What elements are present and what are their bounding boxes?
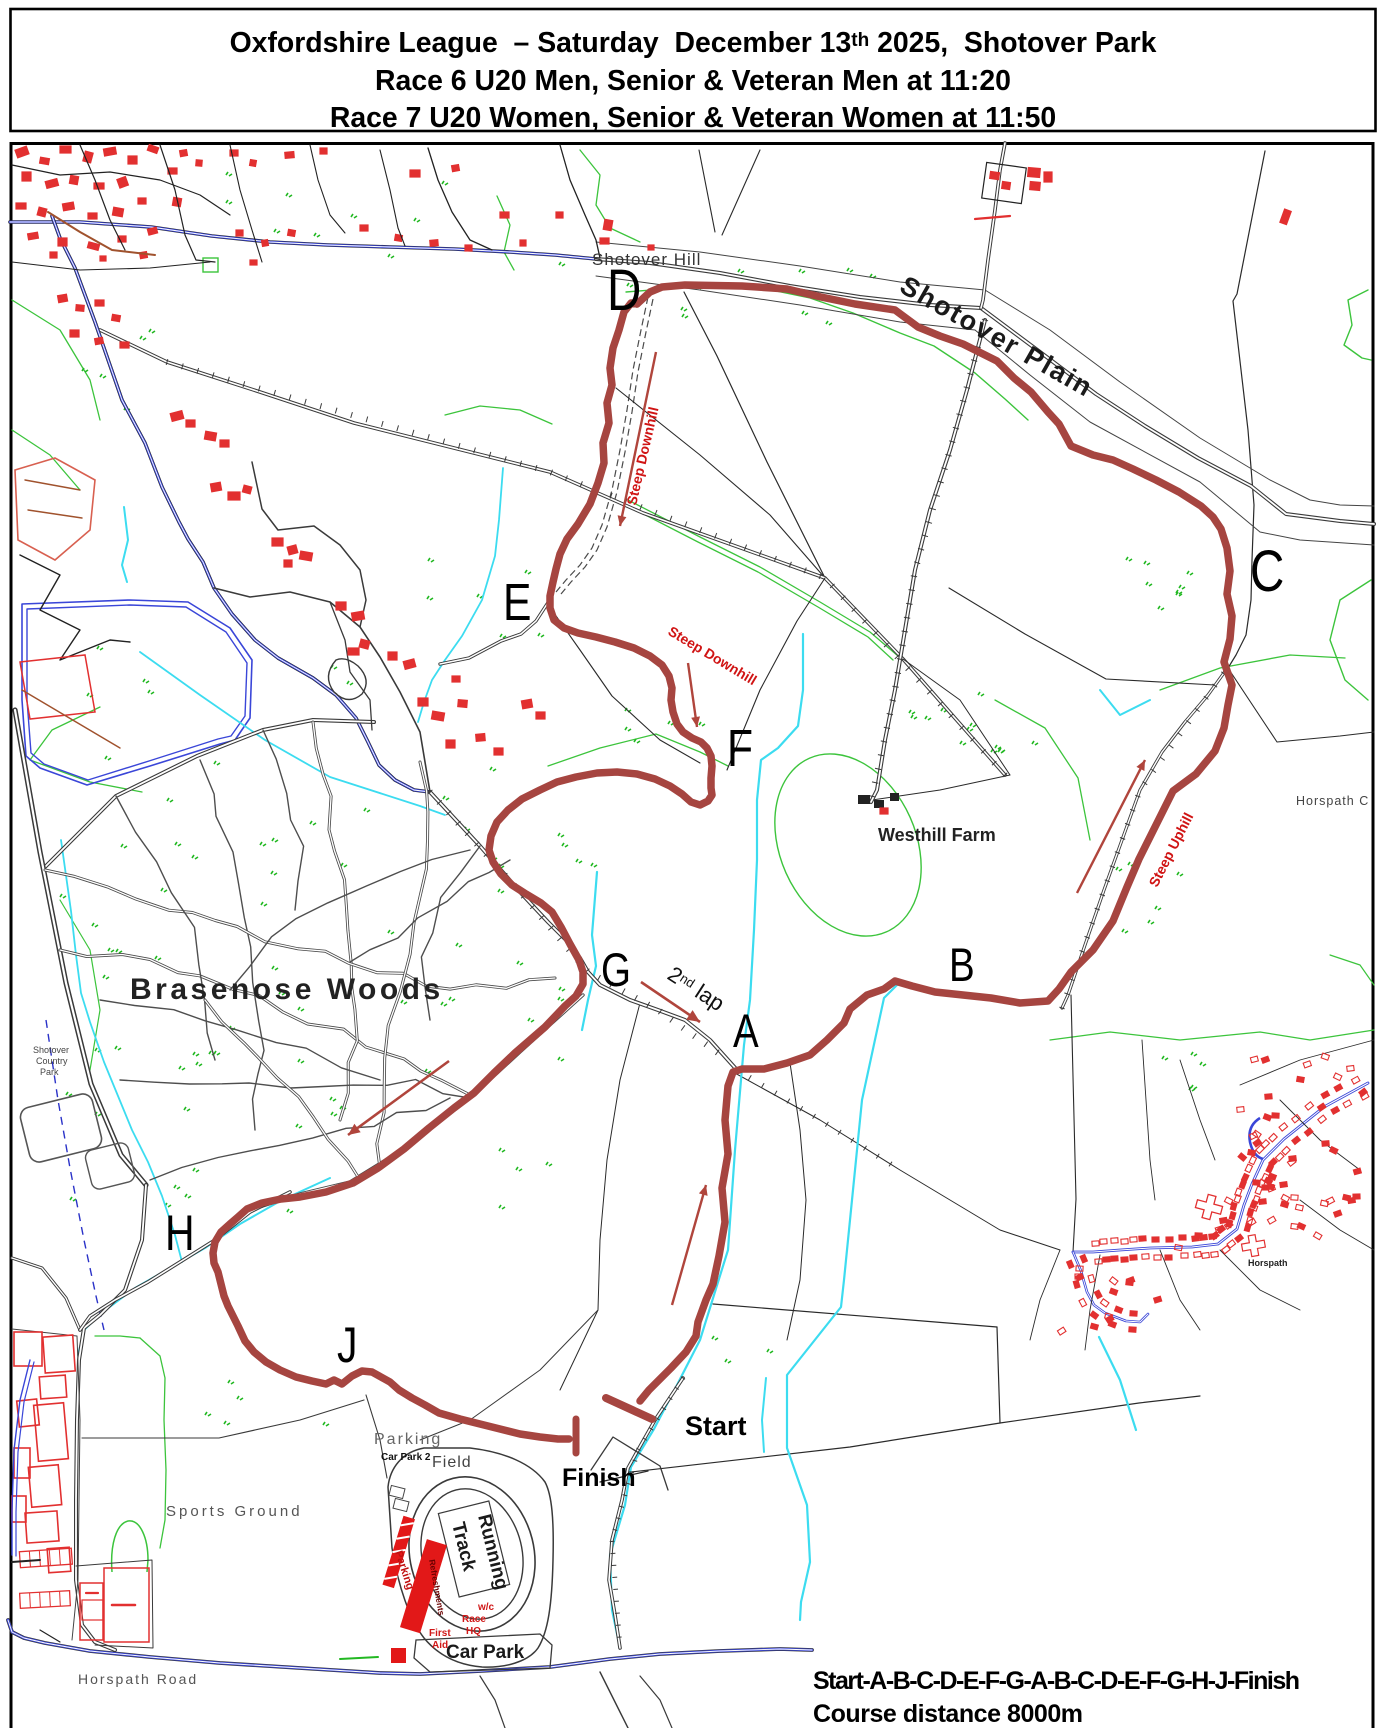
svg-text:Start-A-B-C-D-E-F-G-A-B-C-D-E-: Start-A-B-C-D-E-F-G-A-B-C-D-E-F-G-H-J-Fi… — [813, 1667, 1300, 1695]
svg-text:Race: Race — [462, 1614, 486, 1625]
svg-text:Parking: Parking — [374, 1431, 442, 1448]
svg-text:First: First — [429, 1628, 451, 1639]
svg-text:w/c: w/c — [477, 1602, 495, 1613]
svg-text:Race 6 U20 Men, Senior & Veter: Race 6 U20 Men, Senior & Veteran Men at … — [375, 65, 1011, 97]
svg-text:Horspath: Horspath — [1248, 1258, 1288, 1268]
svg-text:Shotover: Shotover — [33, 1045, 69, 1055]
svg-text:Field: Field — [432, 1454, 472, 1471]
svg-text:Car Park 2: Car Park 2 — [381, 1452, 431, 1463]
svg-text:Country: Country — [36, 1056, 68, 1066]
svg-text:Sports Ground: Sports Ground — [166, 1503, 303, 1520]
svg-text:H: H — [165, 1205, 195, 1261]
svg-text:Course distance 8000m: Course distance 8000m — [813, 1700, 1083, 1728]
svg-text:B: B — [949, 939, 975, 991]
svg-text:Finish: Finish — [562, 1464, 636, 1492]
svg-text:D: D — [607, 259, 641, 324]
svg-text:Horspath Road: Horspath Road — [78, 1671, 198, 1687]
svg-text:HQ: HQ — [466, 1626, 481, 1637]
svg-text:Brasenose Woods: Brasenose Woods — [130, 973, 444, 1006]
svg-text:Horspath C: Horspath C — [1296, 794, 1369, 808]
svg-text:Westhill Farm: Westhill Farm — [878, 825, 996, 845]
svg-text:A: A — [733, 1005, 759, 1057]
svg-text:Start: Start — [685, 1411, 747, 1441]
svg-text:J: J — [337, 1317, 357, 1373]
svg-text:G: G — [601, 944, 631, 996]
svg-text:F: F — [727, 720, 753, 778]
svg-text:Car Park: Car Park — [446, 1642, 525, 1663]
svg-text:Oxfordshire League – Saturday: Oxfordshire League – Saturday December 1… — [230, 27, 1157, 59]
svg-text:C: C — [1250, 540, 1284, 605]
svg-text:Park: Park — [40, 1067, 59, 1077]
svg-text:E: E — [503, 574, 531, 632]
svg-text:Race 7 U20 Women, Senior & Vet: Race 7 U20 Women, Senior & Veteran Women… — [330, 102, 1056, 134]
